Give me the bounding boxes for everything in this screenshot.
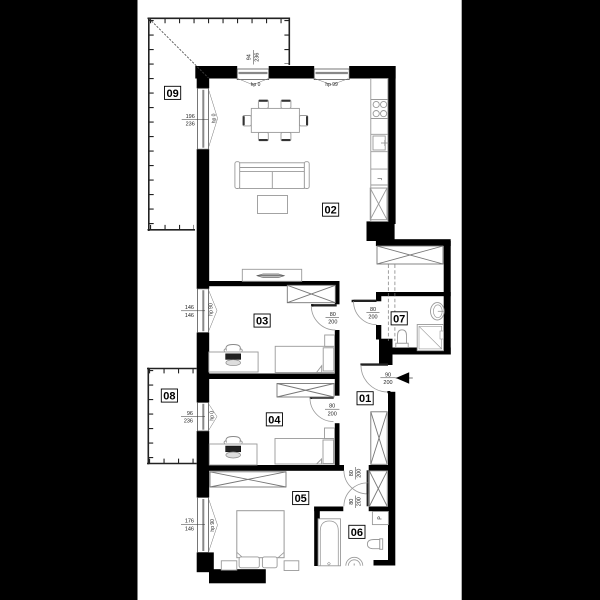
svg-text:80: 80 — [329, 404, 335, 410]
svg-text:196: 196 — [186, 114, 195, 120]
svg-text:hp 0: hp 0 — [209, 411, 215, 421]
svg-text:90: 90 — [385, 372, 391, 378]
svg-text:200: 200 — [328, 411, 337, 417]
svg-text:200: 200 — [357, 469, 363, 478]
svg-text:03: 03 — [256, 316, 268, 328]
svg-text:200: 200 — [368, 315, 377, 321]
svg-text:hp 0: hp 0 — [251, 82, 261, 88]
svg-text:hp 90: hp 90 — [210, 519, 216, 532]
svg-text:07: 07 — [393, 313, 405, 325]
svg-text:236: 236 — [184, 419, 193, 425]
svg-text:146: 146 — [185, 526, 194, 532]
svg-text:236: 236 — [255, 53, 261, 62]
svg-text:200: 200 — [328, 320, 337, 326]
svg-text:200: 200 — [383, 380, 392, 386]
svg-text:09: 09 — [166, 88, 178, 100]
svg-text:94: 94 — [247, 54, 253, 60]
svg-text:80: 80 — [330, 312, 336, 318]
svg-text:hp 90: hp 90 — [208, 303, 214, 316]
svg-text:80: 80 — [349, 470, 355, 476]
svg-text:hp 0: hp 0 — [211, 113, 217, 123]
svg-text:04: 04 — [268, 414, 281, 426]
svg-text:236: 236 — [186, 122, 195, 128]
svg-text:02: 02 — [324, 205, 336, 217]
svg-text:80: 80 — [370, 307, 376, 313]
svg-text:05: 05 — [295, 493, 307, 505]
svg-text:06: 06 — [351, 527, 363, 539]
svg-text:hp 99: hp 99 — [325, 82, 338, 88]
svg-text:146: 146 — [185, 313, 194, 319]
svg-text:80: 80 — [349, 499, 355, 505]
svg-text:08: 08 — [163, 391, 175, 403]
svg-text:01: 01 — [359, 393, 371, 405]
svg-text:176: 176 — [185, 519, 194, 525]
svg-text:96: 96 — [187, 411, 193, 417]
svg-text:146: 146 — [185, 305, 194, 311]
svg-text:200: 200 — [357, 497, 363, 506]
